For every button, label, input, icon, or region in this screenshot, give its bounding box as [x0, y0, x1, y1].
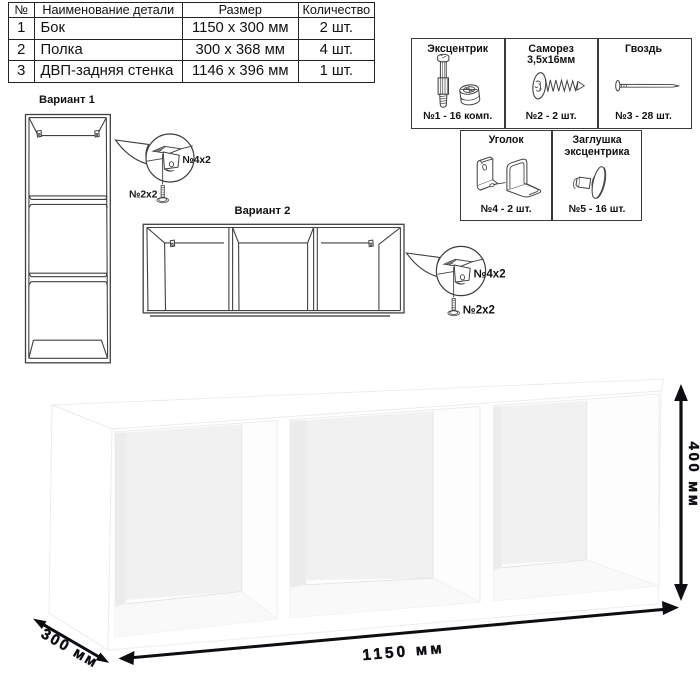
svg-text:№2х2: №2х2	[463, 305, 495, 317]
svg-text:1150 мм: 1150 мм	[362, 640, 446, 664]
svg-text:№4х2: №4х2	[182, 155, 211, 166]
svg-text:400 мм: 400 мм	[685, 442, 700, 509]
svg-text:№4х2: №4х2	[474, 268, 506, 280]
svg-text:№2х2: №2х2	[129, 190, 158, 201]
